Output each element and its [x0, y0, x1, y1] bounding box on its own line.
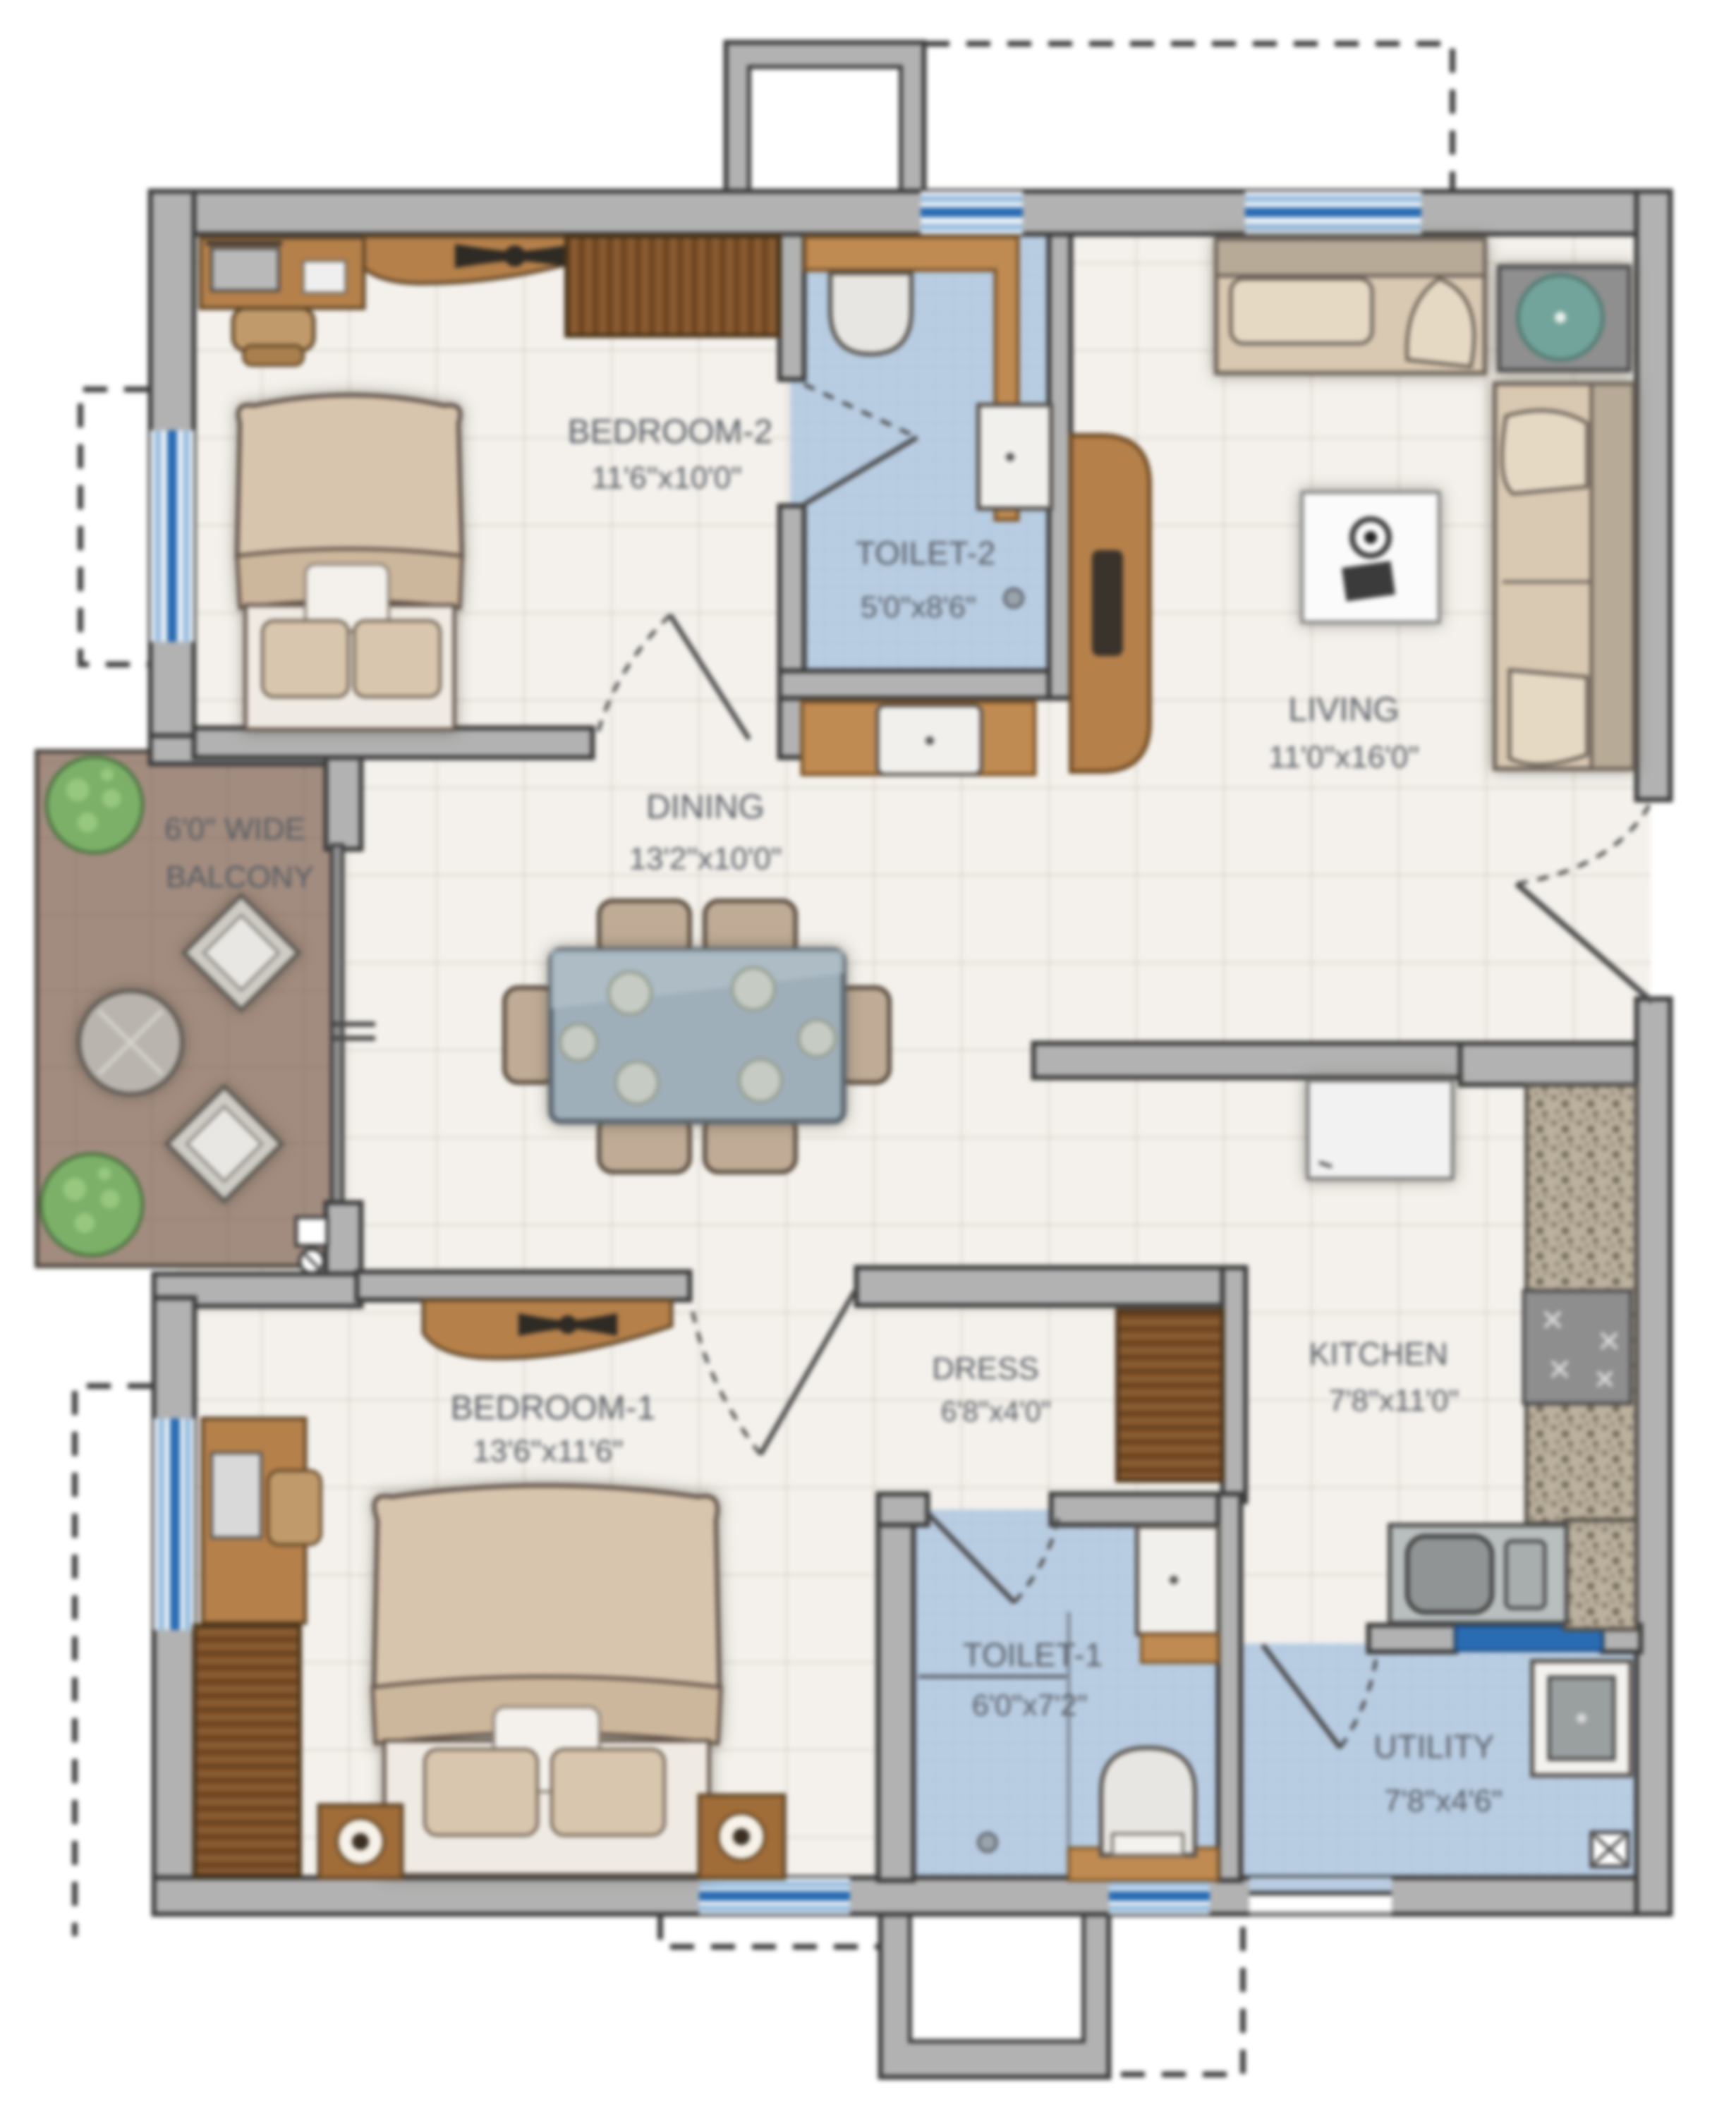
svg-text:6'0" WIDE: 6'0" WIDE: [164, 812, 305, 846]
svg-text:5'0"x8'6": 5'0"x8'6": [861, 590, 976, 624]
svg-text:13'2"x10'0": 13'2"x10'0": [629, 841, 782, 876]
svg-text:6'0"x7'2": 6'0"x7'2": [972, 1689, 1088, 1722]
svg-text:BALCONY: BALCONY: [166, 860, 314, 894]
svg-text:13'6"x11'6": 13'6"x11'6": [473, 1434, 624, 1469]
svg-text:11'6"x10'0": 11'6"x10'0": [591, 461, 742, 495]
svg-text:TOILET-2: TOILET-2: [856, 535, 996, 571]
svg-text:DINING: DINING: [646, 789, 765, 826]
svg-text:7'8"x4'6": 7'8"x4'6": [1384, 1784, 1503, 1818]
svg-text:BEDROOM-1: BEDROOM-1: [451, 1390, 656, 1427]
svg-text:7'8"x11'0": 7'8"x11'0": [1329, 1384, 1459, 1418]
svg-text:TOILET-1: TOILET-1: [963, 1636, 1103, 1673]
svg-text:KITCHEN: KITCHEN: [1309, 1336, 1448, 1372]
svg-text:DRESS: DRESS: [932, 1351, 1039, 1386]
svg-text:UTILITY: UTILITY: [1373, 1728, 1494, 1765]
svg-text:11'0"x16'0": 11'0"x16'0": [1268, 740, 1419, 774]
svg-text:BEDROOM-2: BEDROOM-2: [568, 413, 773, 451]
svg-text:6'8"x4'0": 6'8"x4'0": [941, 1395, 1051, 1428]
svg-text:LIVING: LIVING: [1288, 691, 1399, 729]
